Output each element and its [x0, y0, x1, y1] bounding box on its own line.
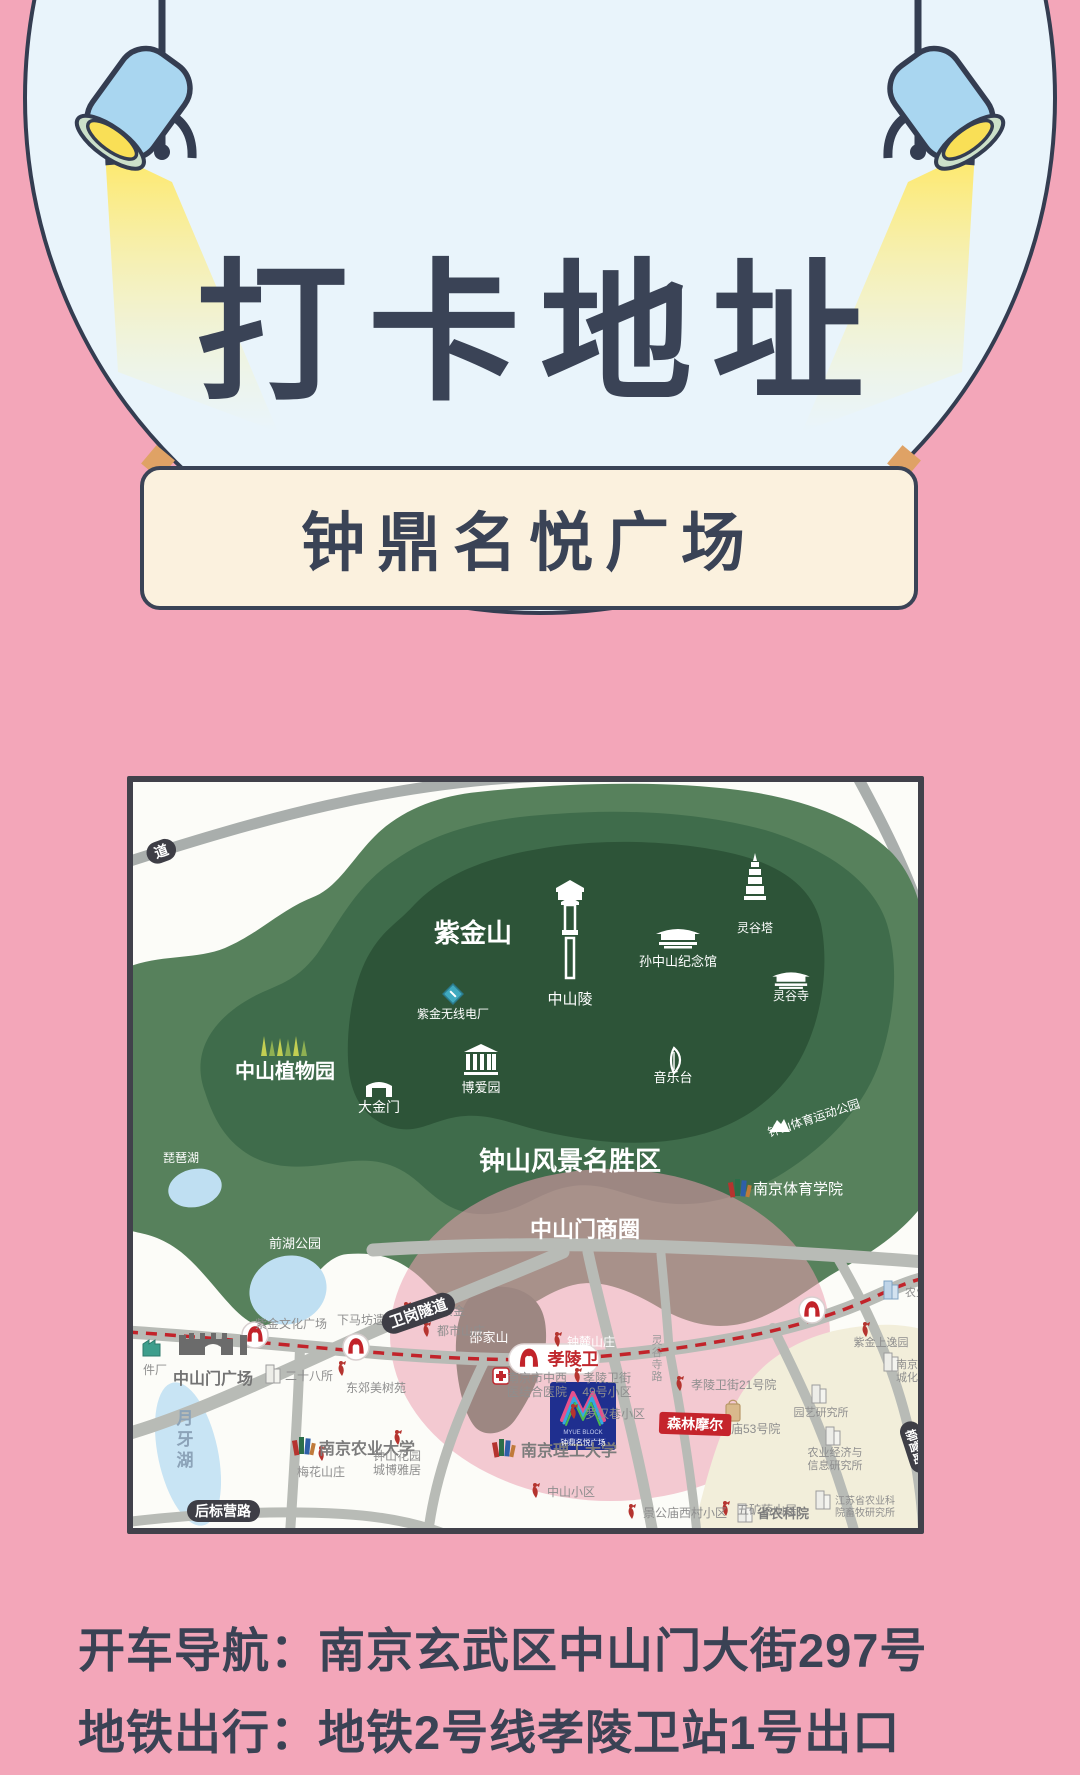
svg-text:中山陵: 中山陵 [547, 991, 592, 1008]
label-xiaolingwei: 孝陵卫 [548, 1349, 599, 1369]
svg-text:景公庙西村小区: 景公庙西村小区 [643, 1506, 727, 1520]
label-boaiyuan: 博爱园 [461, 1080, 500, 1095]
svg-text:中山门商圈: 中山门商圈 [530, 1217, 640, 1242]
label-jgm-west: 景公庙西村小区 [643, 1506, 727, 1520]
svg-text:中山植物园: 中山植物园 [235, 1059, 335, 1083]
svg-text:江苏省农业科院畜牧研究所: 江苏省农业科院畜牧研究所 [835, 1494, 895, 1519]
svg-text:孝陵卫: 孝陵卫 [548, 1349, 599, 1369]
svg-text:紫金山: 紫金山 [434, 918, 512, 948]
page-title: 打卡地址 [0, 210, 1080, 430]
poster-page: 打卡地址 钟鼎名悦广场 [0, 0, 1080, 1775]
label-shangquan: 中山门商圈 [530, 1217, 640, 1242]
driving-directions: 开车导航：南京玄武区中山门大街297号 [78, 1612, 1038, 1681]
label-zijin-culture: 紫金文化广场 [255, 1316, 327, 1331]
label-ershiba: 二十八所 [285, 1369, 333, 1383]
svg-text:园艺研究所: 园艺研究所 [794, 1405, 849, 1419]
label-zsm-square: 中山门广场 [173, 1369, 253, 1388]
label-zs-xiaoqu: 中山小区 [547, 1484, 595, 1499]
svg-text:灵谷塔: 灵谷塔 [737, 921, 773, 935]
svg-text:大金门: 大金门 [358, 1099, 400, 1115]
label-nj-chenghua: 南京城化 [896, 1357, 918, 1384]
svg-text:灵谷寺: 灵谷寺 [773, 989, 809, 1003]
svg-text:农业经济与信息研究所: 农业经济与信息研究所 [808, 1445, 863, 1472]
metro-station-icon [343, 1334, 369, 1360]
label-pipa-lake: 琵琶湖 [163, 1150, 199, 1165]
svg-text:钟山花园城博雅居: 钟山花园城博雅居 [373, 1448, 421, 1477]
label-myue-cn: 钟鼎名悦广场 [561, 1437, 606, 1447]
label-xlw49: 孝陵卫街49号小区 [582, 1371, 631, 1399]
label-myue-en: MYUE BLOCK [563, 1430, 602, 1436]
svg-text:音乐台: 音乐台 [653, 1070, 692, 1085]
svg-text:钟山风景名胜区: 钟山风景名胜区 [479, 1146, 661, 1176]
svg-text:中山小区: 中山小区 [547, 1484, 595, 1499]
label-senlin-moer: 森林摩尔 [659, 1412, 732, 1436]
svg-text:孝陵卫街21号院: 孝陵卫街21号院 [691, 1378, 776, 1392]
svg-text:琵琶湖: 琵琶湖 [163, 1150, 199, 1165]
label-nongkeyuan: 省农科院 [756, 1506, 809, 1521]
svg-text:钟鼎名悦广场: 钟鼎名悦广场 [561, 1437, 606, 1447]
pill-houbiaoying: 后标营路 [187, 1500, 260, 1522]
label-meihua: 梅花山庄 [297, 1464, 345, 1479]
svg-text:中山门广场: 中山门广场 [173, 1369, 253, 1388]
svg-text:MYUE BLOCK: MYUE BLOCK [563, 1430, 602, 1436]
label-linggu-temple: 灵谷寺 [773, 989, 809, 1003]
label-botanical: 中山植物园 [235, 1059, 335, 1083]
label-hospital: 南京市中西医结合医院 [507, 1370, 567, 1399]
metro-directions: 地铁出行：地铁2号线孝陵卫站1号出口 [78, 1694, 1038, 1763]
label-nongye-cut: 农业 [905, 1285, 918, 1299]
label-luohan: 罗汉巷小区 [585, 1407, 645, 1421]
svg-text:南京市中西医结合医院: 南京市中西医结合医院 [507, 1370, 567, 1399]
label-zijinshan: 紫金山 [434, 918, 512, 948]
svg-text:梅花山庄: 梅花山庄 [297, 1464, 345, 1479]
label-yuanyi: 园艺研究所 [794, 1405, 849, 1419]
label-zijin-radio: 紫金无线电厂 [417, 1006, 489, 1021]
svg-text:钟麓山庄: 钟麓山庄 [567, 1334, 615, 1349]
label-shangyiyuan: 紫金上逸园 [854, 1335, 909, 1349]
svg-text:月牙湖: 月牙湖 [176, 1409, 194, 1470]
metro-station-icon [799, 1297, 825, 1323]
location-banner: 钟鼎名悦广场 [140, 466, 918, 610]
map-container: 紫金山中山陵孙中山纪念馆灵谷塔灵谷寺紫金无线电厂中山植物园大金门博爱园音乐台钟山… [127, 776, 924, 1534]
label-js-academy: 江苏省农业科院畜牧研究所 [835, 1494, 895, 1519]
svg-text:南京城化: 南京城化 [896, 1357, 918, 1384]
label-dajinmen: 大金门 [358, 1099, 400, 1115]
label-zhonglu: 钟麓山庄 [567, 1334, 615, 1349]
svg-text:件厂: 件厂 [143, 1363, 167, 1377]
label-scenic-area: 钟山风景名胜区 [479, 1146, 661, 1176]
svg-text:紫金文化广场: 紫金文化广场 [255, 1316, 327, 1331]
svg-text:东郊美树苑: 东郊美树苑 [346, 1380, 406, 1395]
label-yinyuetai: 音乐台 [653, 1070, 692, 1085]
svg-text:都市山庄: 都市山庄 [437, 1323, 485, 1338]
label-zs-garden: 钟山花园城博雅居 [373, 1448, 421, 1477]
label-xlw21: 孝陵卫街21号院 [691, 1378, 776, 1392]
label-qianhu-park: 前湖公园 [269, 1236, 321, 1251]
svg-text:森林摩尔: 森林摩尔 [667, 1415, 724, 1433]
location-banner-title: 钟鼎名悦广场 [301, 492, 757, 584]
svg-text:紫金上逸园: 紫金上逸园 [854, 1335, 909, 1349]
svg-text:南京体育学院: 南京体育学院 [753, 1180, 843, 1198]
label-dushi: 都市山庄 [437, 1323, 485, 1338]
svg-text:省农科院: 省农科院 [756, 1506, 809, 1521]
svg-text:罗汉巷小区: 罗汉巷小区 [585, 1407, 645, 1421]
label-sports-college: 南京体育学院 [753, 1180, 843, 1198]
svg-text:博爱园: 博爱园 [461, 1080, 500, 1095]
svg-text:二十八所: 二十八所 [285, 1369, 333, 1383]
label-jianchang: 件厂 [143, 1363, 167, 1377]
label-linggusi-road: 灵谷寺路 [652, 1334, 663, 1383]
svg-text:孙中山纪念馆: 孙中山纪念馆 [639, 954, 717, 969]
label-sun-memorial: 孙中山纪念馆 [639, 954, 717, 969]
label-yueyahu: 月牙湖 [176, 1409, 194, 1470]
svg-text:孝陵卫街49号小区: 孝陵卫街49号小区 [582, 1371, 631, 1399]
svg-text:紫金无线电厂: 紫金无线电厂 [417, 1006, 489, 1021]
label-dongjiao: 东郊美树苑 [346, 1380, 406, 1395]
label-zhongshanling: 中山陵 [547, 991, 592, 1008]
label-agri-econ: 农业经济与信息研究所 [808, 1445, 863, 1472]
svg-text:前湖公园: 前湖公园 [269, 1236, 321, 1251]
svg-text:后标营路: 后标营路 [195, 1503, 252, 1519]
svg-text:灵谷寺路: 灵谷寺路 [652, 1334, 663, 1383]
area-map: 紫金山中山陵孙中山纪念馆灵谷塔灵谷寺紫金无线电厂中山植物园大金门博爱园音乐台钟山… [133, 782, 918, 1528]
label-linggu-pagoda: 灵谷塔 [737, 921, 773, 935]
svg-text:农业: 农业 [905, 1285, 918, 1299]
